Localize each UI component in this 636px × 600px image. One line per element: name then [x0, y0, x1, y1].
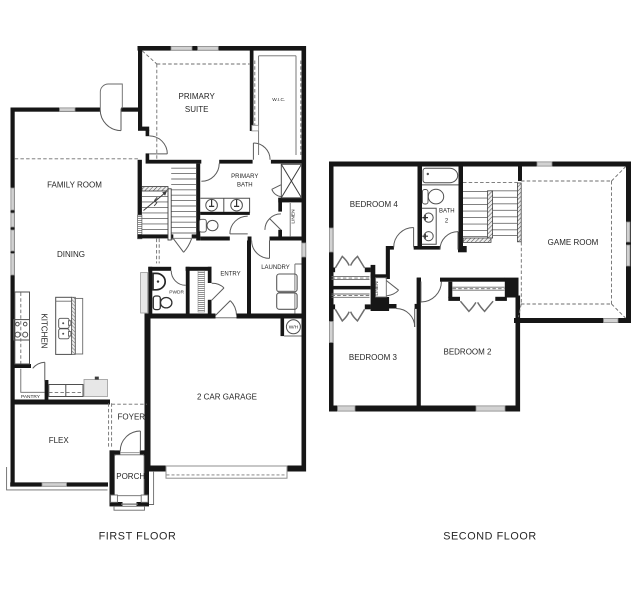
svg-text:FAMILY ROOM: FAMILY ROOM — [47, 181, 102, 190]
svg-text:PWDR: PWDR — [169, 290, 184, 296]
svg-text:SECOND FLOOR: SECOND FLOOR — [443, 531, 537, 543]
svg-text:BEDROOM 3: BEDROOM 3 — [349, 353, 398, 362]
svg-text:KITCHEN: KITCHEN — [40, 313, 49, 348]
svg-text:LINEN: LINEN — [291, 209, 297, 224]
svg-text:W.I.C.: W.I.C. — [272, 97, 285, 103]
svg-text:W/H: W/H — [289, 324, 299, 330]
svg-text:2 CAR GARAGE: 2 CAR GARAGE — [197, 393, 257, 402]
svg-text:GAME ROOM: GAME ROOM — [548, 238, 599, 247]
svg-text:LAUNDRY: LAUNDRY — [261, 265, 290, 271]
svg-text:PANTRY: PANTRY — [21, 394, 41, 400]
svg-text:FOYER: FOYER — [118, 413, 146, 422]
svg-text:PRIMARY: PRIMARY — [179, 92, 216, 101]
svg-text:FIRST FLOOR: FIRST FLOOR — [99, 531, 177, 543]
svg-text:PORCH: PORCH — [116, 472, 145, 481]
svg-text:ENTRY: ENTRY — [220, 272, 240, 278]
svg-text:BATH: BATH — [237, 182, 253, 188]
svg-text:BATH: BATH — [439, 209, 455, 215]
svg-text:PRIMARY: PRIMARY — [231, 174, 258, 180]
svg-text:DINING: DINING — [57, 250, 85, 259]
svg-text:SUITE: SUITE — [185, 105, 209, 114]
svg-text:BEDROOM 4: BEDROOM 4 — [350, 200, 399, 209]
svg-text:FLEX: FLEX — [49, 436, 70, 445]
svg-text:BEDROOM 2: BEDROOM 2 — [443, 348, 492, 357]
svg-text:LINEN: LINEN — [374, 281, 380, 296]
